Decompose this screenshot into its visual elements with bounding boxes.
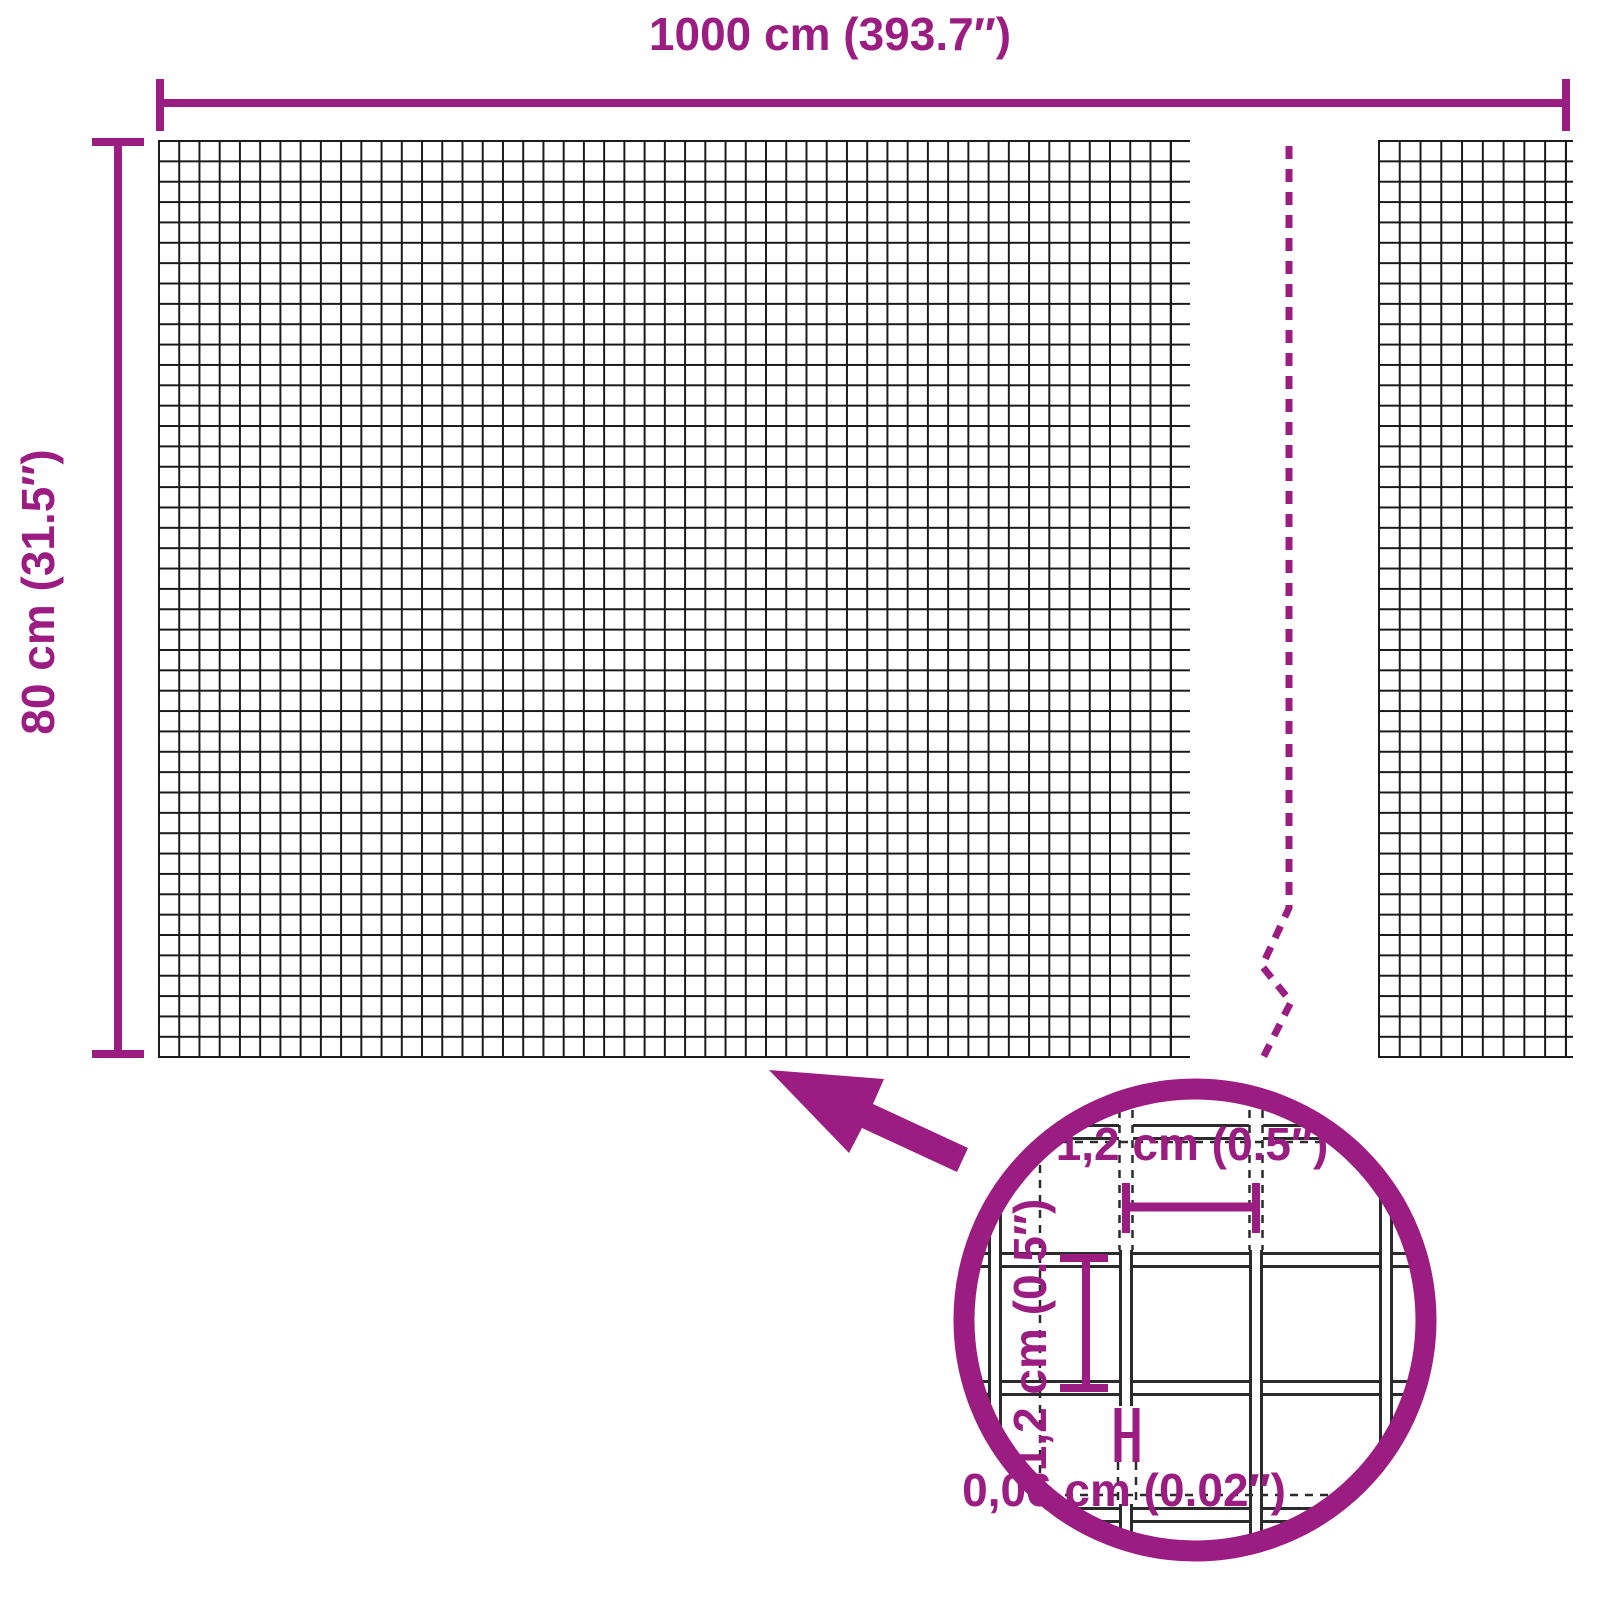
mesh-dimension-diagram: 1000 cm (393.7″) 80 cm (31.5″) 1,2 cm (0… — [0, 0, 1600, 1600]
detail-dimension-marks — [1060, 1183, 1256, 1462]
mesh-height-label: 1,2 cm (0.5″) — [1004, 1199, 1056, 1472]
annotation-overlay: 1000 cm (393.7″) 80 cm (31.5″) 1,2 cm (0… — [0, 0, 1600, 1600]
wire-thickness-label: 0,06 cm (0.02″) — [962, 1464, 1286, 1516]
zoom-arrow-icon — [769, 1070, 968, 1172]
break-line — [1262, 146, 1291, 1058]
mesh-width-label: 1,2 cm (0.5″) — [1056, 1118, 1329, 1170]
height-dimension-label: 80 cm (31.5″) — [12, 449, 64, 734]
width-dimension-label: 1000 cm (393.7″) — [649, 8, 1011, 60]
